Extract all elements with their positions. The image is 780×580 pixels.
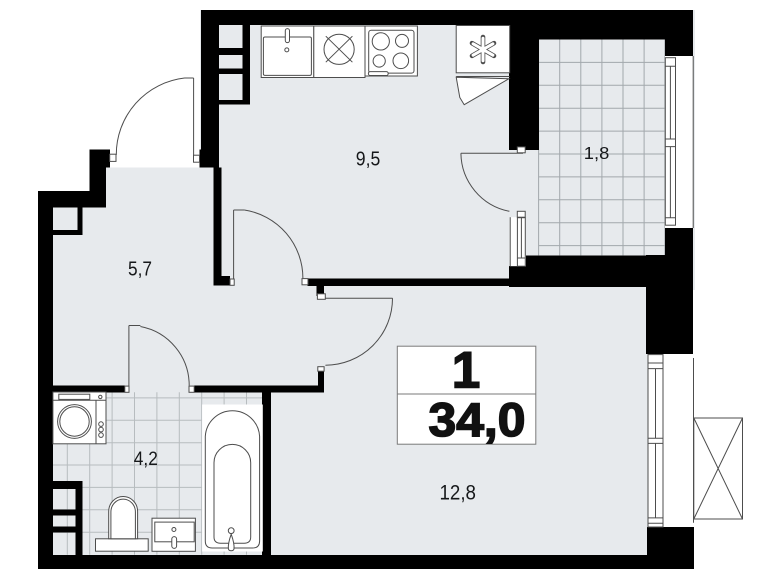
svg-text:1,8: 1,8 xyxy=(584,143,610,163)
svg-text:1: 1 xyxy=(452,342,480,399)
svg-text:9,5: 9,5 xyxy=(356,148,381,171)
svg-text:34,0: 34,0 xyxy=(429,393,526,446)
svg-text:5,7: 5,7 xyxy=(128,257,152,280)
svg-text:12,8: 12,8 xyxy=(440,481,477,505)
svg-text:4,2: 4,2 xyxy=(134,449,158,470)
